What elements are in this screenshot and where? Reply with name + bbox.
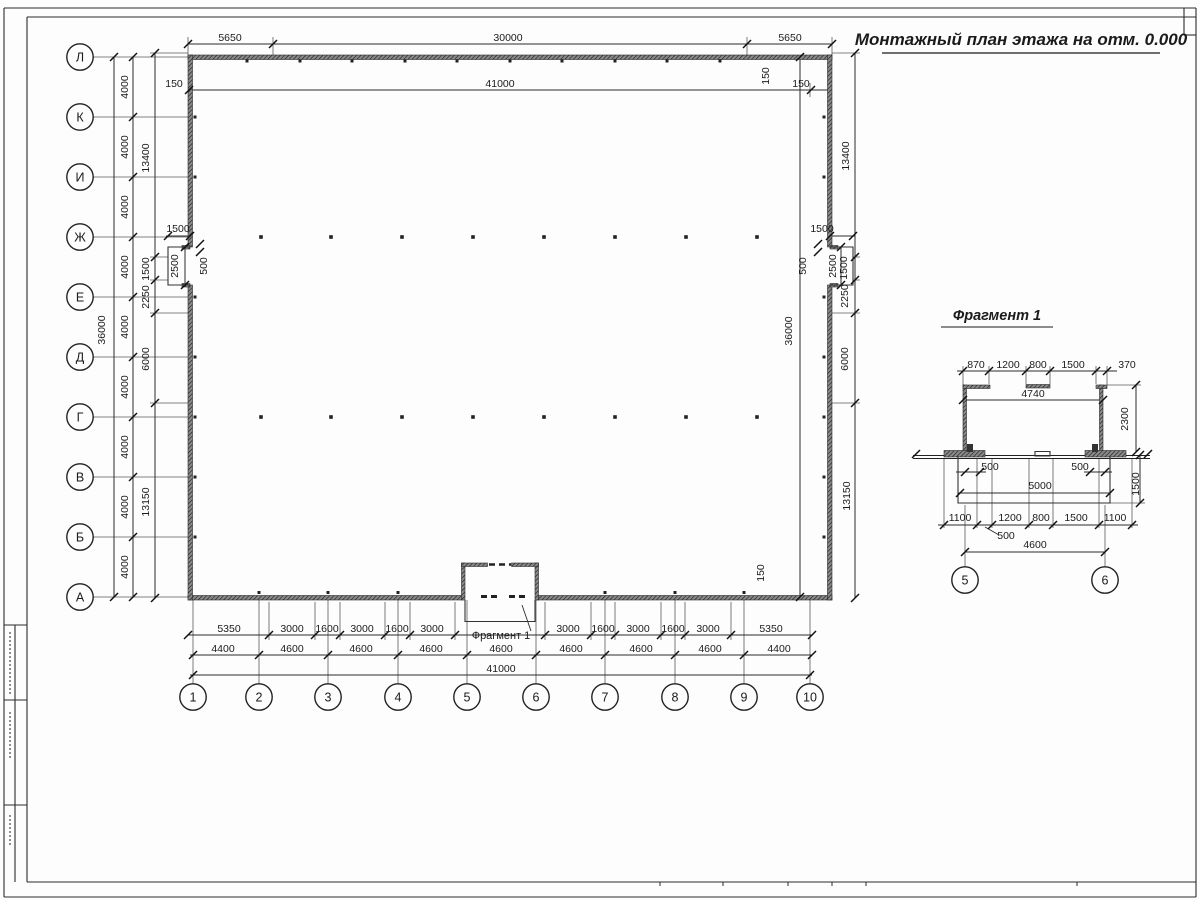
wall-stud [246,60,249,63]
dim-label: 370 [1118,359,1136,371]
wall-stud [194,296,197,299]
wall-stud [456,60,459,63]
dim-label: 36000 [783,316,795,345]
row-axis-bubble-label: Б [76,531,84,545]
dim-label: 1600 [385,623,409,635]
dim-label: 1500 [1130,472,1142,496]
wall-stud [823,296,826,299]
dim-label: 150 [755,564,767,582]
dim-label: 13400 [140,143,152,172]
dim-label: 4000 [119,195,131,219]
wall-segment [512,563,539,567]
fragment-callout-label: Фрагмент 1 [472,630,531,642]
row-axis-bubble-label: Д [76,351,85,365]
dim-label: 5650 [778,32,802,44]
col-axis-bubble-label: 3 [325,691,332,705]
wall-stud [404,60,407,63]
row-axis-bubble-label: В [76,471,84,485]
dim-label: 3000 [350,623,374,635]
dim-label: 1500 [838,256,850,280]
dim-label: 1100 [1104,512,1127,524]
column-dot [400,235,404,239]
col-axis-bubble-label: 2 [256,691,263,705]
dim-label: 1600 [661,623,685,635]
dim-label: 2500 [169,254,181,278]
entrance-dashed-lines [481,565,527,597]
wall-segment [188,285,193,600]
column-dot [755,415,759,419]
dim-label: 3000 [280,623,304,635]
wall-studs [194,60,826,595]
dim-label: 13150 [140,487,152,516]
col-axis-bubble-label: 9 [741,691,748,705]
row-axis-bubble-label: Е [76,291,84,305]
dim-label: 4600 [489,643,513,655]
column-dot [613,415,617,419]
dim-label: 13400 [840,141,852,170]
dim-label: 1500 [140,257,152,281]
tick-mark [814,248,822,256]
wall-segment [188,55,193,247]
dim-label: 4600 [349,643,373,655]
wall-stud [327,591,330,594]
wall-segment [963,385,990,389]
wall-foot [1092,444,1098,452]
dim-label: 2250 [839,284,851,308]
wall-segment [537,596,832,601]
dim-label: 1100 [949,512,972,524]
dim-label: 4000 [119,555,131,579]
wall-segment [828,285,833,600]
thin-outline [465,600,535,622]
dim-label: 4600 [559,643,583,655]
wall-foot [967,444,973,452]
wall-segment [1085,451,1126,458]
wall-stud [397,591,400,594]
dim-label: 6000 [839,347,851,371]
col-axis-bubble-label: 7 [602,691,609,705]
column-dot [755,235,759,239]
wall-stud [823,476,826,479]
wall-segment [188,55,832,60]
dim-label: 4000 [119,255,131,279]
wall-stud [561,60,564,63]
column-dot [684,235,688,239]
axis-bubbles: ЛКИЖЕДГВБА1234567891056 [67,44,1118,710]
wall-stud [604,591,607,594]
drawing-title: Монтажный план этажа на отм. 0.000 [855,30,1188,49]
dim-label: 4000 [119,75,131,99]
tick-mark [196,248,204,256]
row-axis-bubble-label: А [76,591,85,605]
wall-stud [194,116,197,119]
wall-segment [944,451,985,458]
dim-labels: 5650300005650150410001501503600040004000… [96,32,1142,675]
wall-stud [614,60,617,63]
dim-label: 3000 [556,623,580,635]
dim-label: 1500 [810,223,834,235]
column-dot [259,235,263,239]
drawing-canvas: 5650300005650150410001501503600040004000… [0,0,1200,900]
wall-segment [828,55,833,247]
wall-stud [194,416,197,419]
sheet-frame [4,8,1196,897]
dim-label: 4400 [767,643,791,655]
tick-mark [912,450,920,458]
row-axis-bubble-label: И [76,171,85,185]
dim-label: 1200 [996,359,1020,371]
column-dot [471,235,475,239]
dim-label: 1500 [1064,512,1088,524]
col-axis-bubble-label: 4 [395,691,402,705]
dim-label: 870 [967,359,985,371]
dim-label: 36000 [96,315,108,344]
col-axis-bubble-label: 10 [803,691,817,705]
dim-label: 500 [997,530,1015,542]
fragment-axis-bubble-label: 5 [962,574,969,588]
dim-label: 5350 [217,623,241,635]
wall-segment [462,563,488,567]
dim-label: 500 [797,257,809,275]
extension-lines [93,37,1145,684]
wall-stud [719,60,722,63]
dim-label: 800 [1032,512,1050,524]
leader-line [522,605,531,631]
wall-segment [535,563,539,600]
wall-stud [666,60,669,63]
dim-label: 1600 [315,623,339,635]
wall-stud [194,536,197,539]
dim-label: 1200 [998,512,1022,524]
wall-stud [674,591,677,594]
dim-label: 4400 [211,643,235,655]
wall-segment [188,596,463,601]
tick-mark [196,240,204,248]
wall-stud [258,591,261,594]
dim-label: 5650 [218,32,242,44]
dim-label: 4000 [119,315,131,339]
wall-stud [351,60,354,63]
column-dot [329,235,333,239]
row-axis-bubble-label: Ж [74,231,86,245]
dim-label: 1500 [1061,359,1085,371]
dim-label: 1600 [591,623,615,635]
dim-label: 4600 [1023,539,1047,551]
dim-label: 150 [760,67,772,85]
row-axis-bubble-label: Л [76,51,84,65]
dim-label: 3000 [696,623,720,635]
column-dot [684,415,688,419]
dim-label: 1500 [166,223,190,235]
wall-segment [462,563,466,600]
fragment-axis-bubble-label: 6 [1102,574,1109,588]
dim-label: 500 [1071,461,1089,473]
dim-label: 500 [198,257,210,275]
dim-label: 30000 [493,32,522,44]
dim-label: 150 [792,78,810,90]
dim-label: 150 [165,78,183,90]
wall-segment [1100,385,1104,452]
column-dot [613,235,617,239]
thin-outlines [168,247,1110,622]
tick-mark [1144,450,1152,458]
dim-label: 5000 [1028,480,1052,492]
dim-label: 4000 [119,495,131,519]
column-dot [542,235,546,239]
dim-label: 41000 [486,663,515,675]
dim-label: 800 [1029,359,1047,371]
wall-segment [963,385,967,452]
row-axis-bubble-label: К [76,111,84,125]
dim-label: 6000 [140,347,152,371]
dim-label: 3000 [626,623,650,635]
dim-label: 500 [981,461,999,473]
column-dot [400,415,404,419]
fragment-title: Фрагмент 1 [953,308,1041,324]
wall-stud [194,176,197,179]
column-dot [329,415,333,419]
col-axis-bubble-label: 5 [464,691,471,705]
dim-label: 4600 [419,643,443,655]
column-dot [471,415,475,419]
dim-label: 4600 [698,643,722,655]
wall-stud [743,591,746,594]
column-dot [542,415,546,419]
dim-label: 4740 [1021,388,1045,400]
dim-label: 4600 [280,643,304,655]
wall-stud [194,476,197,479]
dim-label: 41000 [485,78,514,90]
wall-stud [509,60,512,63]
dim-label: 2300 [1119,407,1131,431]
wall-stud [823,536,826,539]
dim-label: 4000 [119,435,131,459]
wall-stud [823,356,826,359]
col-axis-bubble-label: 6 [533,691,540,705]
row-axis-bubble-label: Г [77,411,84,425]
col-axis-bubble-label: 8 [672,691,679,705]
wall-stud [299,60,302,63]
drawing-sheet: 5650300005650150410001501503600040004000… [0,0,1200,900]
tick-mark [814,240,822,248]
wall-stud [823,176,826,179]
column-dot [259,415,263,419]
dim-label: 3000 [420,623,444,635]
dim-label: 13150 [841,481,853,510]
col-axis-bubble-label: 1 [190,691,197,705]
wall-stud [194,356,197,359]
wall-stud [823,416,826,419]
dim-label: 2250 [140,285,152,309]
dim-label: 4000 [119,375,131,399]
dim-label: 4000 [119,135,131,159]
dim-label: 4600 [629,643,653,655]
interior-columns [259,235,759,419]
wall-stud [823,116,826,119]
wall-segment [1096,385,1107,389]
dim-label: 5350 [759,623,783,635]
